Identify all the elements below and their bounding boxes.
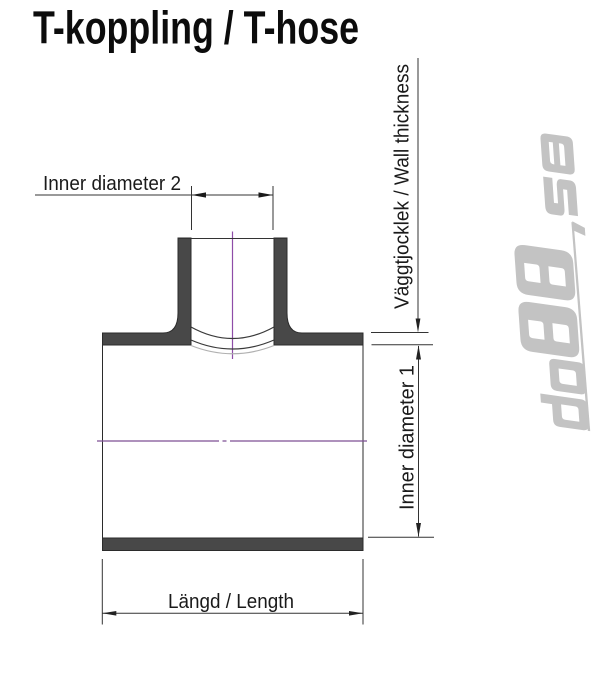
svg-text:Inner diameter 2: Inner diameter 2 <box>43 173 181 195</box>
svg-text:Längd / Length: Längd / Length <box>168 591 294 613</box>
svg-text:Väggtjocklek / Wall thickness: Väggtjocklek / Wall thickness <box>392 64 414 309</box>
svg-text:T-koppling / T-hose: T-koppling / T-hose <box>33 2 359 54</box>
svg-text:Inner diameter 1: Inner diameter 1 <box>397 365 419 510</box>
